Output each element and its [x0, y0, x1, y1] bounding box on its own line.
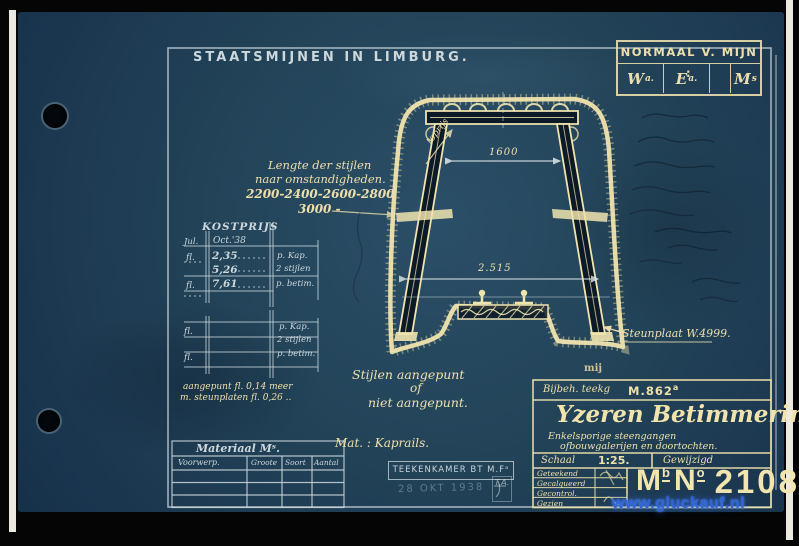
titleblock-main-title: Yzeren Betimmering v. — [556, 401, 799, 428]
titleblock-subtitle-2: ofbouwgalerijen en doortochten. — [560, 441, 717, 452]
lengte-line1: Lengte der stijlen — [268, 158, 371, 172]
stamp-date: 28 OKT 1938 — [398, 482, 485, 495]
stamp-monogram: T.A. — [492, 476, 512, 502]
schaal-label: Schaal — [541, 455, 575, 466]
kostprijs-unit-2: 2 stijlen — [276, 264, 310, 274]
sign-row-gecontrol: Gecontrol. — [537, 489, 577, 498]
kostprijs-fl-3: fl. — [186, 281, 195, 291]
blueprint-photo: STAATSMIJNEN IN LIMBURG. NORMAAL V. MIJN… — [0, 0, 799, 546]
lengte-line3: 2200-2400-2600-2800 — [246, 187, 395, 201]
bijbeh-label: Bijbeh. teekg — [543, 384, 610, 395]
schaal-value: 1:25. — [598, 454, 630, 467]
sheet-title: STAATSMIJNEN IN LIMBURG. — [193, 50, 470, 65]
kostprijs-head-left: Jul. — [184, 237, 198, 247]
kostprijs-fl-4: fl. — [184, 327, 193, 337]
normaal-cell-ea: Ea. — [664, 64, 710, 93]
normaal-v-mijn-box: NORMAAL V. MIJN : Wa. Ea. Ms — [616, 40, 762, 96]
rail-right — [515, 290, 533, 303]
mat-label: Mat. : Kaprails. — [335, 436, 429, 450]
stijlen-note-2: of — [410, 381, 422, 395]
normaal-cell-empty — [710, 64, 731, 93]
normaal-cell-wa: Wa. — [618, 64, 664, 93]
stijl-right-web — [563, 124, 599, 334]
kostprijs-fl-6: fl. — [184, 353, 193, 363]
normaal-label: NORMAAL V. MIJN : — [618, 42, 760, 64]
materiaal-col-groote: Groote — [251, 458, 277, 467]
kostprijs-title: KOSTPRIJS — [202, 221, 278, 233]
sign-row-geteekend: Geteekend — [537, 469, 578, 478]
normaal-cell-ms: Ms — [731, 64, 760, 93]
aangepunt-note-1: aangepunt fl. 0,14 meer — [183, 382, 293, 392]
kostprijs-unit-6: p. betim. — [277, 349, 315, 359]
base-plate-left — [394, 332, 418, 341]
stijlen-note-1: Stijlen aangepunt — [352, 367, 464, 382]
materiaal-col-voorwerp: Voorwerp. — [178, 458, 220, 467]
base-plate-right — [590, 332, 614, 341]
steunplaat-label: Steunplaat W.4999. — [622, 327, 731, 340]
kostprijs-val-1: 2,35 — [212, 250, 238, 262]
materiaal-title: Materiaal Mˢ. — [196, 442, 280, 455]
leader-3000 — [332, 211, 394, 215]
sign-row-gecalqueerd: Gecalqueerd — [537, 479, 585, 488]
kostprijs-head-right: Oct.'38 — [213, 236, 246, 246]
lengte-line2: naar omstandigheden. — [255, 172, 386, 186]
materiaal-col-aantal: Aantal — [314, 458, 339, 467]
bijbeh-number: M.862a — [628, 383, 679, 398]
dim-2515-label: 2.515 — [478, 263, 512, 274]
materiaal-col-soort: Soort — [285, 458, 306, 467]
dim-1600-label: 1600 — [489, 147, 518, 158]
kostprijs-val-3: 7,61 — [212, 278, 238, 290]
kostprijs-unit-3: p. betim. — [276, 279, 314, 289]
kostprijs-unit-5: 2 stijlen — [277, 335, 311, 345]
sign-row-gezien: Gezien — [537, 499, 563, 508]
kostprijs-val-2: 5,26 — [212, 264, 238, 276]
mij-label: mij — [584, 363, 602, 374]
lengte-line4: 3000 - — [298, 202, 341, 216]
stijl-left-web — [405, 124, 441, 334]
cap-clamps — [444, 104, 568, 111]
stijlen-note-3: niet aangepunt. — [368, 395, 468, 410]
kostprijs-unit-1: p. Kap. — [277, 251, 307, 261]
kostprijs-fl-1: fl. — [186, 253, 195, 263]
aangepunt-note-2: m. steunplaten fl. 0,26 .. — [180, 393, 291, 403]
watermark: www.gluckauf.nl — [612, 495, 745, 513]
kostprijs-unit-4: p. Kap. — [279, 322, 309, 332]
